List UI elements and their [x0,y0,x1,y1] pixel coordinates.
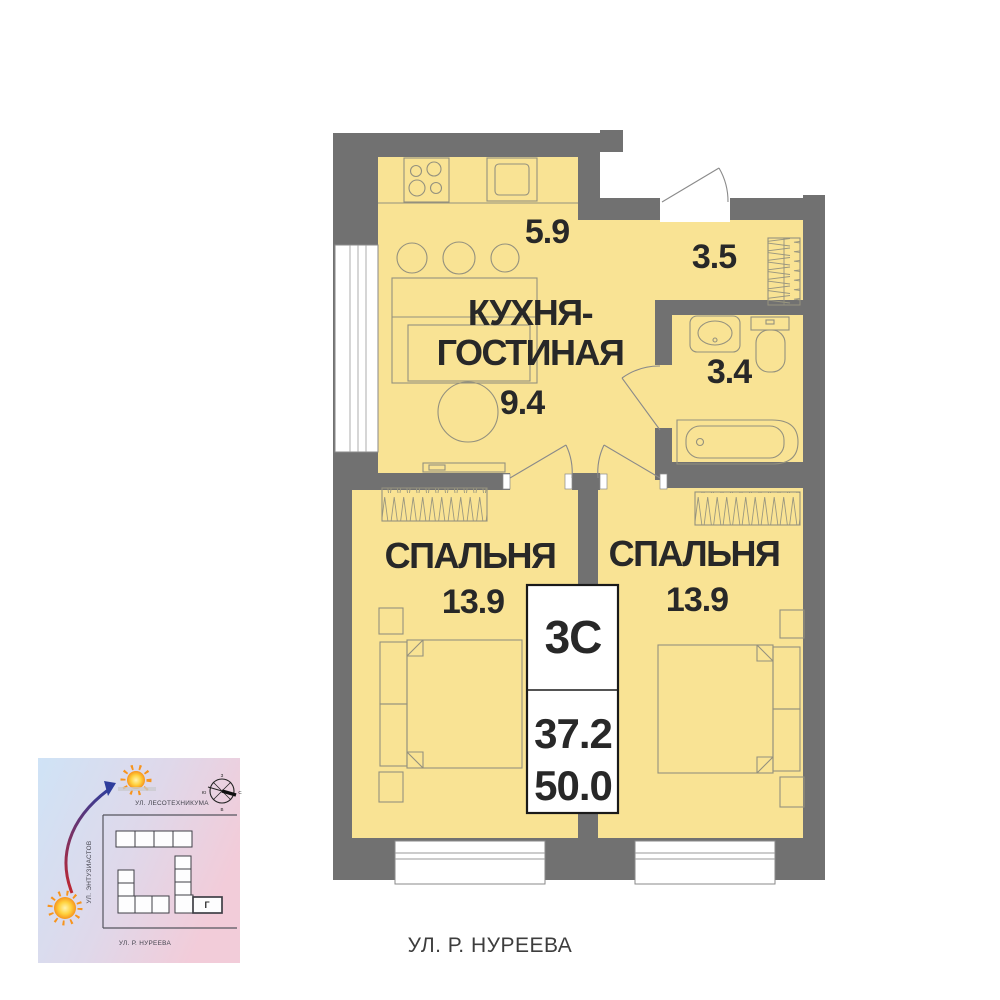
minimap-street-bottom: УЛ. Р. НУРЕЕВА [119,940,172,947]
living-area-value: 9.4 [500,384,545,422]
bathroom-area-value: 3.4 [707,353,752,391]
kitchen-living-label-line1: КУХНЯ- [468,292,593,333]
compass-west-letter: З [221,773,224,778]
wall-right [803,195,825,838]
bedroom-right-area: 13.9 [666,581,728,619]
wardrobe-bedroom-left [382,488,487,521]
bedroom-left-label: СПАЛЬНЯ [385,535,556,576]
wall-left-thick-top [352,133,378,245]
wall-bathroom-bottom [660,462,803,488]
bedroom-right-window [635,841,775,884]
wall-left [333,133,352,838]
stove-icon [404,158,449,202]
kitchen-living-label-line2: ГОСТИНАЯ [437,332,624,373]
hallway-area-value: 3.5 [692,238,736,276]
living-area-total: 37.2 [534,710,612,757]
compass-south-letter: Ю [202,790,207,795]
entrance-door [660,168,730,222]
kitchen-zone-area: 5.9 [525,213,569,251]
location-minimap: Г УЛ. ЛЕСОТЕХНИКУМА УЛ. ЭНТУЗИАСТОВ УЛ. … [38,758,242,963]
wall-bathroom-left-upper [655,300,672,365]
total-area: 50.0 [534,762,612,809]
bedroom-left-area: 13.9 [442,583,504,621]
floorplan-page: 5.9 КУХНЯ- ГОСТИНАЯ 9.4 3.5 3.4 СПАЛЬНЯ … [0,0,1000,1000]
wardrobe-bedroom-right [695,492,800,525]
wall-bedrooms-top-stub [572,473,600,490]
wall-hall-top-left [578,198,660,220]
wardrobe-hallway [768,238,800,305]
compass-north-letter: С [238,790,242,795]
apartment-info-box: 3С 37.2 50.0 [527,585,618,813]
kitchen-sink-icon [487,158,537,201]
minimap-street-top: УЛ. ЛЕСОТЕХНИКУМА [135,800,209,807]
apartment-type: 3С [545,611,602,663]
wall-top-tooth [600,130,623,152]
balcony-window [335,245,378,452]
minimap-street-left: УЛ. ЭНТУЗИАСТОВ [86,841,93,904]
bedroom-left-window [395,841,545,884]
minimap-building-g-label: Г [204,900,209,910]
street-label-main: УЛ. Р. НУРЕЕВА [408,934,573,957]
compass-east-letter: В [220,807,223,812]
bedroom-right-label: СПАЛЬНЯ [609,533,780,574]
wall-hall-top-right [730,198,803,220]
floorplan-canvas: 5.9 КУХНЯ- ГОСТИНАЯ 9.4 3.5 3.4 СПАЛЬНЯ … [0,0,1000,1000]
